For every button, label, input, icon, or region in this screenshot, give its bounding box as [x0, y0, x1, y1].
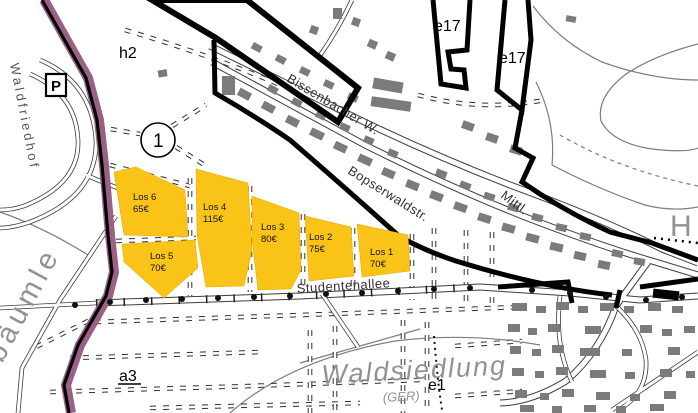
west-boundary	[42, 0, 114, 413]
parcel-price: 65€	[133, 204, 150, 215]
boundary-e17-left	[433, 0, 470, 88]
parcel-price: 80€	[261, 234, 278, 245]
boundary-stripe-purple	[44, 0, 114, 413]
parcel-label: Los 1	[370, 247, 393, 258]
parcel-label: Los 6	[133, 192, 156, 203]
parcel-los-4[interactable]	[196, 169, 252, 287]
boundary-line-black	[42, 0, 112, 413]
parcel-price: 70€	[370, 259, 387, 270]
area-h: H	[670, 210, 692, 243]
area-region-code: (GER)	[382, 388, 420, 405]
forest-lot-map: Los 6 65€ Los 5 70€ Los 4 115€ Los 3 80€…	[0, 0, 698, 413]
parcel-price: 75€	[309, 244, 326, 255]
parcel-price: 115€	[203, 214, 224, 225]
circle-number-label: 1	[153, 131, 164, 152]
parking-label: P	[51, 78, 61, 95]
area-waldsiedlung: Waldsiedlung	[321, 350, 508, 390]
parcel-label: Los 3	[261, 222, 284, 233]
map-symbols: P 1	[46, 74, 175, 157]
parcel-label: Los 2	[309, 232, 332, 243]
parcel-label: Los 4	[203, 202, 226, 213]
marker-h2: h2	[119, 45, 137, 62]
marker-a3: a3	[119, 368, 137, 385]
map-canvas: Los 6 65€ Los 5 70€ Los 4 115€ Los 3 80€…	[0, 0, 698, 413]
parcel-price: 70€	[150, 263, 167, 274]
parcel-label: Los 5	[150, 251, 173, 262]
marker-e17-right: e17	[499, 50, 526, 67]
marker-e17-left: e17	[434, 18, 461, 35]
